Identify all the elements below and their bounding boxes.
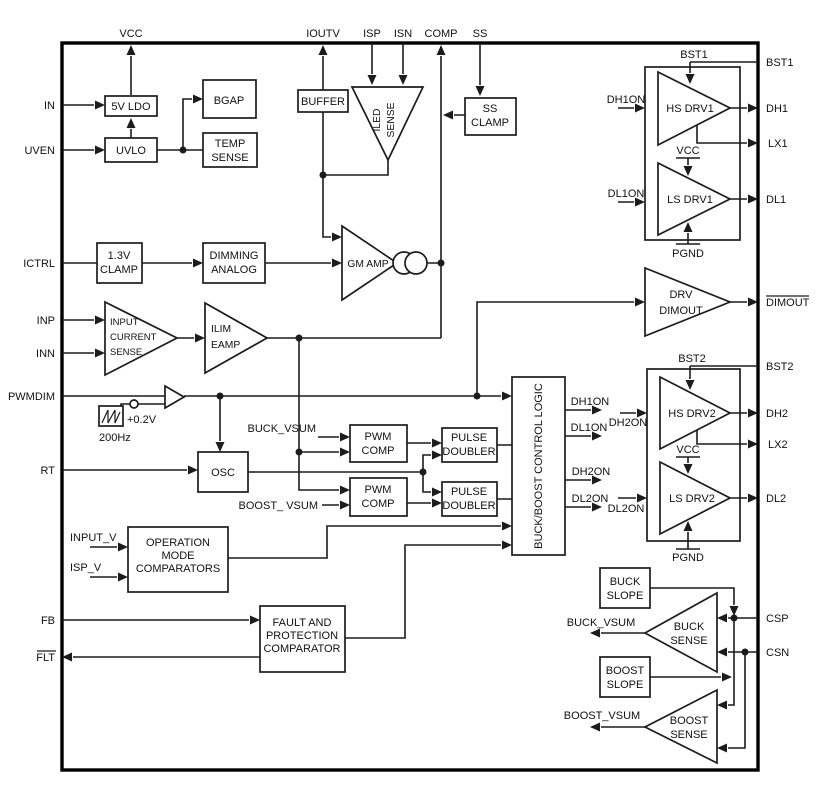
pwmdim-comparator xyxy=(165,386,184,408)
pin-label-dl1: DL1 xyxy=(766,194,786,206)
pin-label-ss: SS xyxy=(473,28,488,40)
junction-dot xyxy=(180,147,187,154)
label-pulse-doubler2-1: PULSE xyxy=(451,486,487,498)
label-op-mode-2: MODE xyxy=(162,550,195,562)
junction-dot xyxy=(474,393,481,400)
label-ls-drv1: LS DRV1 xyxy=(667,194,713,206)
pin-label-fb: FB xyxy=(41,615,55,627)
junction-dot xyxy=(731,615,738,622)
pin-label-uven: UVEN xyxy=(24,145,55,157)
pin-label-ictrl: ICTRL xyxy=(23,258,55,270)
label-pwm-comp1-1: PWM xyxy=(365,431,392,443)
ilim-eamp xyxy=(205,303,267,373)
signal-bst2-internal: BST2 xyxy=(678,353,706,365)
pin-label-csn: CSN xyxy=(766,647,789,659)
pin-label-comp: COMP xyxy=(425,28,458,40)
signal-dl2on-stub: DL2ON xyxy=(572,493,609,505)
label-boost-slope-2: SLOPE xyxy=(607,679,644,691)
pin-label-lx1: LX1 xyxy=(768,138,788,150)
label-ss-clamp-2: CLAMP xyxy=(471,117,509,129)
pin-label-rt: RT xyxy=(41,465,56,477)
label-pulse-doubler2-2: DOUBLER xyxy=(442,500,495,512)
label-dimming-1: DIMMING xyxy=(210,250,259,262)
label-1v3-clamp-1: 1.3V xyxy=(108,250,131,262)
pin-label-pwmdim: PWMDIM xyxy=(8,391,55,403)
pin-label-dimout: DIMOUT xyxy=(766,297,810,309)
label-control-logic: BUCK/BOOST CONTROL LOGIC xyxy=(533,383,545,549)
junction-dot xyxy=(742,649,749,656)
signal-freq: 200Hz xyxy=(99,432,131,444)
signal-vcc-drv2: VCC xyxy=(676,444,699,456)
signal-dh1on-driver: DH1ON xyxy=(607,94,646,106)
signal-boost-vsum-out: BOOST_VSUM xyxy=(564,710,640,722)
label-input-sense-1: INPUT xyxy=(110,317,139,328)
pin-label-flt: FLT xyxy=(36,652,55,664)
label-pwm-comp2-2: COMP xyxy=(362,498,395,510)
label-dimming-2: ANALOG xyxy=(211,264,257,276)
label-pulse-doubler1-2: DOUBLER xyxy=(442,446,495,458)
drv-dimout-amp xyxy=(645,268,730,336)
label-boost-slope-1: BOOST xyxy=(606,665,645,677)
block-boost-slope xyxy=(600,657,650,697)
label-osc: OSC xyxy=(211,467,235,479)
signal-dh2on-driver: DH2ON xyxy=(609,417,648,429)
label-gm-amp: GM AMP xyxy=(347,259,388,270)
label-pulse-doubler1-1: PULSE xyxy=(451,432,487,444)
signal-dl1on-stub: DL1ON xyxy=(571,422,608,434)
label-input-sense-2: CURRENT xyxy=(110,332,157,343)
pin-label-dl2: DL2 xyxy=(766,493,786,505)
label-op-mode-3: COMPARATORS xyxy=(136,563,220,575)
block-1v3-clamp xyxy=(97,243,142,283)
label-iled-sense-2: SENSE xyxy=(386,102,397,137)
pin-label-csp: CSP xyxy=(766,613,789,625)
pin-label-bst1: BST1 xyxy=(766,57,794,69)
signal-dh2on-stub: DH2ON xyxy=(572,466,611,478)
label-temp-sense-1: TEMP xyxy=(215,138,246,150)
label-pwm-comp1-2: COMP xyxy=(362,445,395,457)
wires-logic-outputs xyxy=(565,108,636,507)
junction-dot xyxy=(320,172,327,179)
pin-label-bst2: BST2 xyxy=(766,361,794,373)
signal-bst1-internal: BST1 xyxy=(680,49,708,61)
pin-label-lx2: LX2 xyxy=(768,439,788,451)
label-pwm-comp2-1: PWM xyxy=(365,484,392,496)
label-1v3-clamp-2: CLAMP xyxy=(100,264,138,276)
label-buck-slope-2: SLOPE xyxy=(607,590,644,602)
summing-node-icon xyxy=(130,400,138,408)
signal-dh1on-stub: DH1ON xyxy=(571,396,610,408)
gm-output-ring2-icon xyxy=(405,252,427,274)
label-buck-sense-2: SENSE xyxy=(670,635,707,647)
signal-pgnd-drv2: PGND xyxy=(672,552,704,564)
label-uvlo: UVLO xyxy=(116,145,146,157)
label-iled-sense-1: ILED xyxy=(372,109,383,132)
diagram-canvas: VCC IOUTV ISP ISN COMP SS IN UVEN ICTRL … xyxy=(0,0,820,807)
label-5v-ldo: 5V LDO xyxy=(111,101,151,113)
pin-label-ioutv: IOUTV xyxy=(306,28,340,40)
label-buck-sense-1: BUCK xyxy=(674,621,705,633)
pin-label-in: IN xyxy=(44,100,55,112)
signal-offset: +0.2V xyxy=(127,414,157,426)
label-drv-dimout-1: DRV xyxy=(669,289,693,301)
pin-label-dh2: DH2 xyxy=(766,408,788,420)
label-hs-drv2: HS DRV2 xyxy=(668,408,715,420)
signal-isp-v: ISP_V xyxy=(70,562,102,574)
pin-label-isn: ISN xyxy=(394,28,412,40)
label-drv-dimout-2: DIMOUT xyxy=(659,305,703,317)
junction-dot xyxy=(296,449,303,456)
signal-buck-vsum-out: BUCK_VSUM xyxy=(567,617,635,629)
label-temp-sense-2: SENSE xyxy=(211,152,248,164)
label-bgap: BGAP xyxy=(214,95,245,107)
pin-label-dh1: DH1 xyxy=(766,103,788,115)
label-boost-sense-1: BOOST xyxy=(670,715,709,727)
label-ilim-2: EAMP xyxy=(211,340,240,351)
pin-label-inp: INP xyxy=(37,315,55,327)
label-hs-drv1: HS DRV1 xyxy=(666,103,713,115)
label-buck-slope-1: BUCK xyxy=(610,576,641,588)
signal-dl1on-driver: DL1ON xyxy=(608,188,645,200)
junction-dot xyxy=(217,393,224,400)
junction-dot xyxy=(296,335,303,342)
label-ss-clamp-1: SS xyxy=(483,103,498,115)
label-boost-sense-2: SENSE xyxy=(670,729,707,741)
signal-boost-vsum-in: BOOST_ VSUM xyxy=(239,500,318,512)
pin-label-vcc: VCC xyxy=(119,28,142,40)
signal-pgnd-drv1: PGND xyxy=(672,248,704,260)
block-buck-slope xyxy=(600,568,650,608)
pin-label-isp: ISP xyxy=(363,28,381,40)
label-fault-2: PROTECTION xyxy=(266,630,338,642)
block-dimming-analog xyxy=(203,243,265,283)
label-ilim-1: ILIM xyxy=(211,324,231,335)
signal-dl2on-driver: DL2ON xyxy=(608,503,645,515)
junction-dot xyxy=(420,469,427,476)
junction-dot xyxy=(438,260,445,267)
label-ls-drv2: LS DRV2 xyxy=(669,493,715,505)
signal-input-v: INPUT_V xyxy=(70,532,117,544)
signal-vcc-drv1: VCC xyxy=(676,145,699,157)
block-diagram: VCC IOUTV ISP ISN COMP SS IN UVEN ICTRL … xyxy=(0,0,820,807)
pin-label-inn: INN xyxy=(36,348,55,360)
label-op-mode-1: OPERATION xyxy=(146,537,210,549)
label-fault-3: COMPARATOR xyxy=(263,643,340,655)
label-buffer: BUFFER xyxy=(301,96,345,108)
signal-buck-vsum-in: BUCK_VSUM xyxy=(248,423,316,435)
label-fault-1: FAULT AND xyxy=(273,617,332,629)
label-input-sense-3: SENSE xyxy=(110,347,142,358)
